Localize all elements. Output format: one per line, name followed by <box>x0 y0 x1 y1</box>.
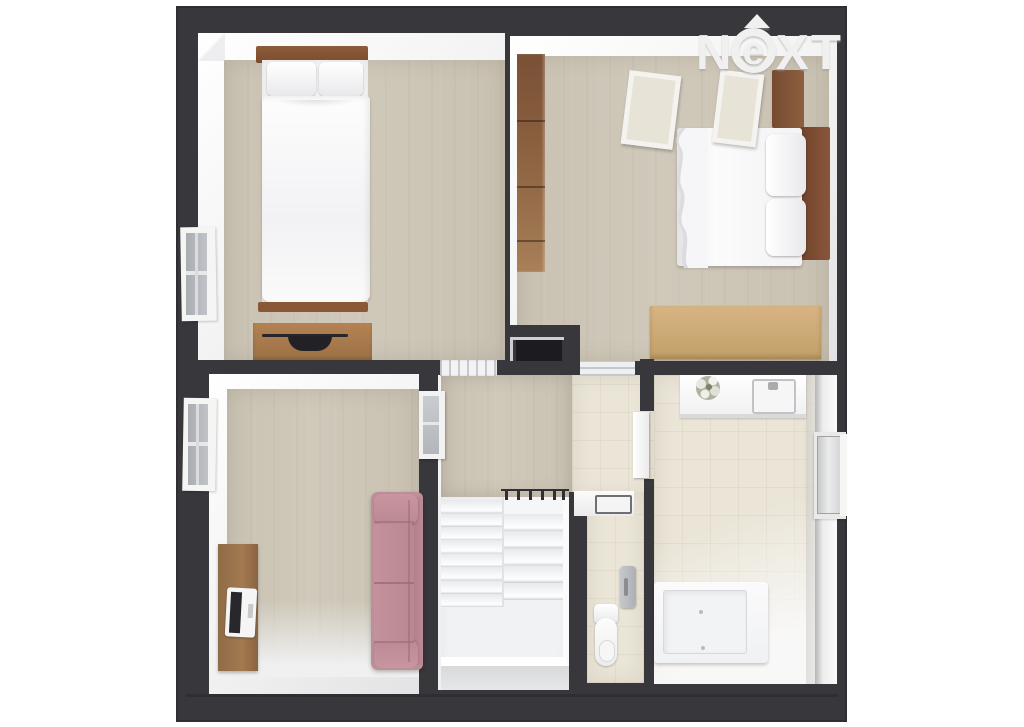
svg-text:e: e <box>742 29 764 73</box>
svg-text:N: N <box>696 26 731 80</box>
svg-text:T: T <box>811 26 841 80</box>
svg-text:X: X <box>776 26 809 80</box>
